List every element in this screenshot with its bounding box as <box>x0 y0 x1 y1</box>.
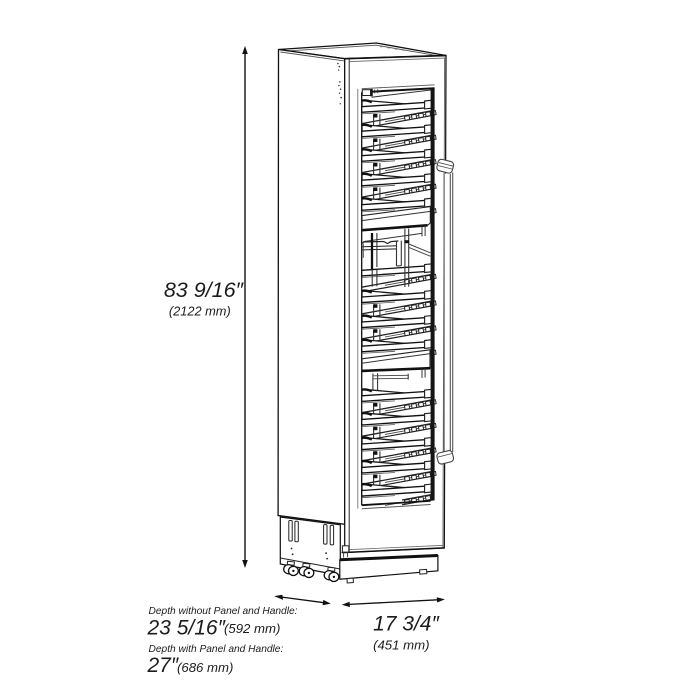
svg-text:(592 mm): (592 mm) <box>224 621 280 636</box>
svg-text:Depth without Panel and Handle: Depth without Panel and Handle: <box>149 606 298 617</box>
svg-text:83 9/16″: 83 9/16″ <box>164 278 245 302</box>
svg-text:(686 mm): (686 mm) <box>177 660 233 675</box>
svg-text:17 3/4″: 17 3/4″ <box>373 613 440 636</box>
svg-text:27″: 27″ <box>147 654 180 677</box>
svg-text:(2122 mm): (2122 mm) <box>169 304 231 319</box>
svg-text:(451 mm): (451 mm) <box>373 637 429 652</box>
svg-text:23 5/16″: 23 5/16″ <box>147 617 227 640</box>
